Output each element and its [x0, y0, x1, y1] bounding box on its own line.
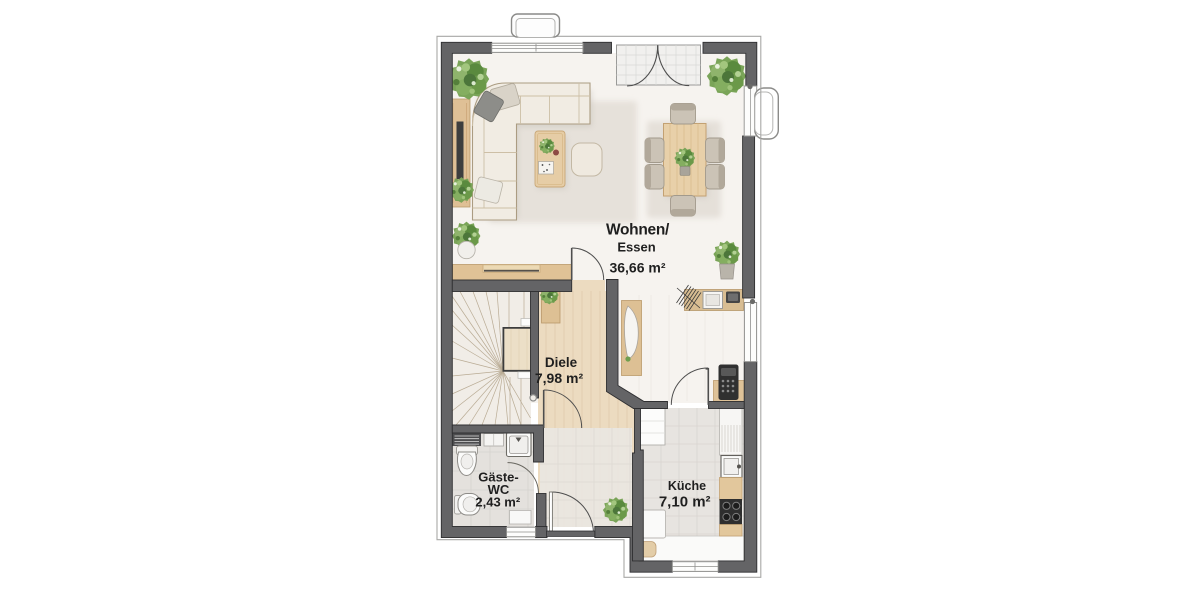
- svg-text:36,66 m²: 36,66 m²: [609, 260, 665, 276]
- svg-text:7,10 m²: 7,10 m²: [659, 493, 711, 510]
- svg-text:Diele: Diele: [545, 355, 578, 370]
- svg-text:7,98 m²: 7,98 m²: [535, 370, 584, 386]
- svg-text:2,43 m²: 2,43 m²: [475, 495, 520, 510]
- svg-text:Wohnen/: Wohnen/: [606, 222, 670, 239]
- svg-text:Essen: Essen: [617, 240, 655, 255]
- svg-text:Küche: Küche: [668, 479, 706, 493]
